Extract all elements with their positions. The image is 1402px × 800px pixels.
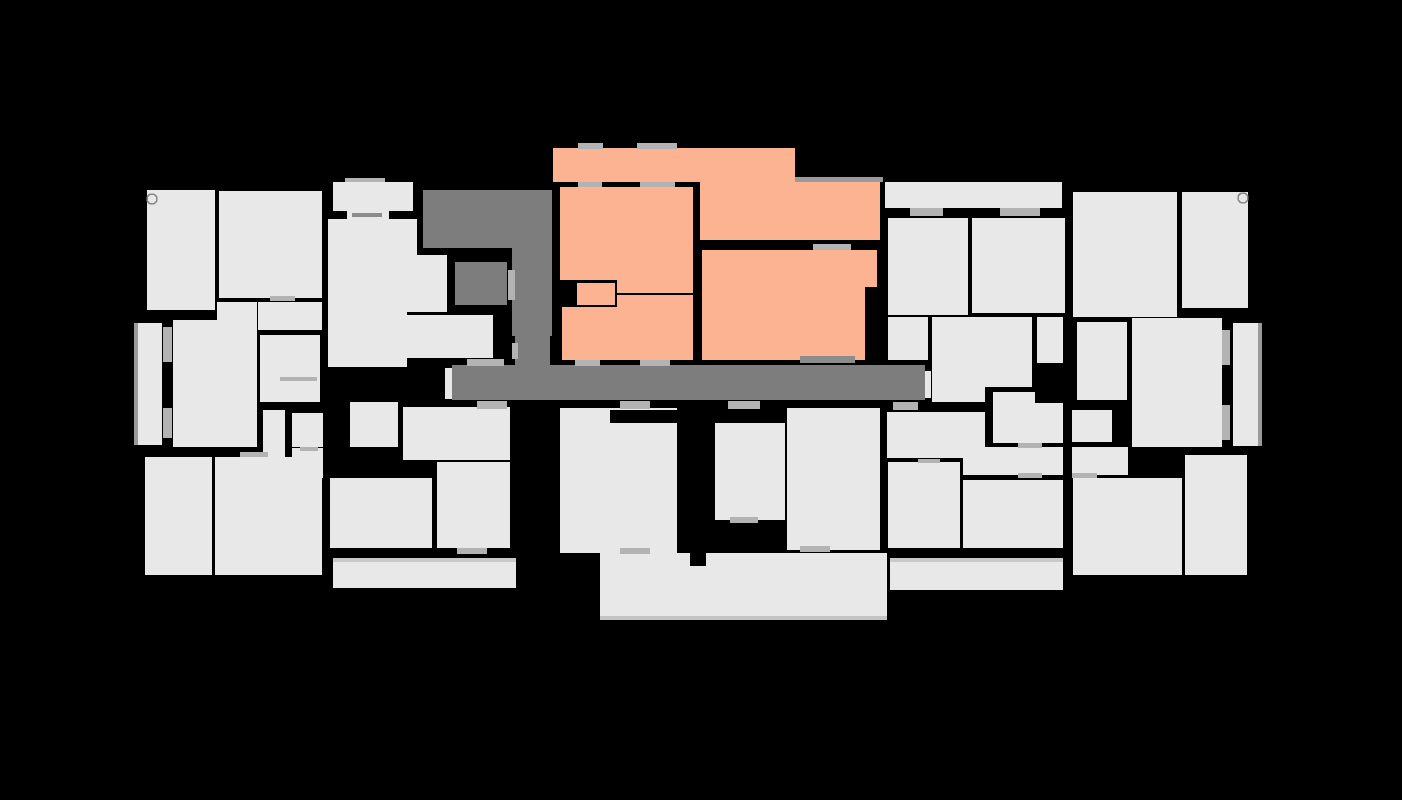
- door-strip-w: [508, 270, 515, 300]
- room-m4[interactable]: [437, 462, 510, 548]
- door-l10: [240, 452, 268, 457]
- room-r1[interactable]: [888, 218, 968, 315]
- room-bc3[interactable]: [787, 408, 880, 550]
- room-g[interactable]: [260, 335, 320, 402]
- window-hall-1: [578, 143, 603, 149]
- shade-ne: [795, 177, 883, 182]
- door-r9-1: [1222, 330, 1230, 365]
- room-r12[interactable]: [1072, 410, 1112, 442]
- window-hall-2: [637, 143, 677, 149]
- room-r10[interactable]: [1233, 323, 1262, 446]
- room-b[interactable]: [219, 191, 322, 298]
- room-sq1[interactable]: [292, 413, 323, 447]
- door-corr-3: [728, 401, 760, 409]
- wall-bc1: [610, 410, 677, 423]
- u-living[interactable]: [702, 250, 877, 360]
- shade-a2: [134, 323, 138, 445]
- door-m2: [478, 402, 500, 407]
- room-bc1[interactable]: [560, 408, 677, 553]
- room-r0[interactable]: [885, 182, 1062, 208]
- room-m3[interactable]: [330, 478, 432, 548]
- room-m1[interactable]: [350, 402, 398, 447]
- room-a2[interactable]: [137, 323, 162, 445]
- door-rbar2: [1072, 473, 1097, 478]
- door-a2-1: [163, 327, 172, 362]
- room-r7[interactable]: [1037, 317, 1063, 363]
- door-b: [270, 296, 295, 301]
- room-f[interactable]: [258, 302, 322, 330]
- door-bedroom-1: [578, 182, 602, 187]
- room-r8[interactable]: [1077, 322, 1127, 400]
- door-r11: [1018, 443, 1042, 448]
- room-rbar2[interactable]: [1072, 447, 1128, 475]
- room-ctop[interactable]: [333, 182, 413, 211]
- window-ctop: [345, 178, 385, 182]
- door-bc3: [800, 546, 830, 552]
- cap-right[interactable]: [925, 371, 931, 398]
- room-r15[interactable]: [1185, 455, 1247, 575]
- room-m2[interactable]: [403, 407, 510, 460]
- door-cconn: [352, 213, 382, 217]
- room-r2[interactable]: [972, 218, 1065, 313]
- door-living-corr: [800, 356, 855, 363]
- wall-stem: [690, 548, 706, 566]
- door-kitchen: [640, 360, 670, 366]
- trim-slab: [600, 616, 887, 620]
- door-swing-a: [147, 194, 157, 204]
- room-slab[interactable]: [600, 553, 887, 620]
- room-rbar3[interactable]: [890, 558, 1063, 590]
- u-kitchen[interactable]: [617, 295, 693, 360]
- u-hall[interactable]: [553, 148, 795, 182]
- door-corr-2: [620, 401, 650, 409]
- door-corr-4: [893, 402, 918, 410]
- u-wc[interactable]: [577, 283, 615, 305]
- door-bc2: [730, 517, 758, 523]
- door-r0-1: [910, 208, 943, 216]
- room-x[interactable]: [407, 315, 493, 358]
- cap-left[interactable]: [445, 368, 452, 399]
- room-q2[interactable]: [963, 480, 1063, 548]
- floor-plan-viewport: [0, 0, 1402, 800]
- c-corridor: [452, 365, 925, 400]
- door-bc1: [620, 548, 650, 554]
- room-l9[interactable]: [145, 457, 212, 575]
- door-rbar1: [1018, 473, 1042, 478]
- room-r14[interactable]: [1073, 478, 1182, 575]
- door-swing-r4: [1238, 193, 1248, 203]
- door-r0-2: [1000, 208, 1040, 216]
- u-room-ne[interactable]: [700, 182, 880, 240]
- door-xroom: [467, 359, 504, 366]
- room-q1[interactable]: [888, 462, 960, 548]
- u-bath[interactable]: [562, 307, 617, 360]
- door-bath-corr: [575, 360, 600, 366]
- trim-lbar: [333, 558, 516, 562]
- door-bedroom-2: [640, 182, 675, 187]
- c-hall-nw: [423, 190, 517, 248]
- door-q1: [918, 459, 940, 463]
- room-rbar1[interactable]: [963, 447, 1063, 475]
- door-m4: [457, 548, 487, 554]
- room-r5[interactable]: [888, 317, 928, 360]
- door-ne-living: [813, 244, 851, 250]
- room-lbar[interactable]: [333, 558, 516, 588]
- line-g: [280, 377, 317, 381]
- room-r3[interactable]: [1073, 192, 1177, 317]
- door-strip-s: [512, 343, 518, 359]
- door-sq: [300, 447, 318, 451]
- trim-rbar: [890, 558, 1063, 562]
- door-r9-2: [1222, 405, 1230, 440]
- shade-r10: [1258, 323, 1262, 446]
- c-stub: [515, 336, 550, 366]
- room-r4[interactable]: [1182, 192, 1248, 308]
- c-block: [455, 262, 507, 305]
- room-a[interactable]: [147, 190, 215, 310]
- c-strip: [512, 190, 552, 336]
- room-e[interactable]: [173, 302, 257, 447]
- u-bedroom[interactable]: [560, 187, 693, 293]
- room-r9[interactable]: [1132, 318, 1222, 447]
- room-bc2[interactable]: [715, 423, 785, 520]
- floor-plan: [0, 0, 1402, 800]
- door-a2-2: [163, 408, 172, 438]
